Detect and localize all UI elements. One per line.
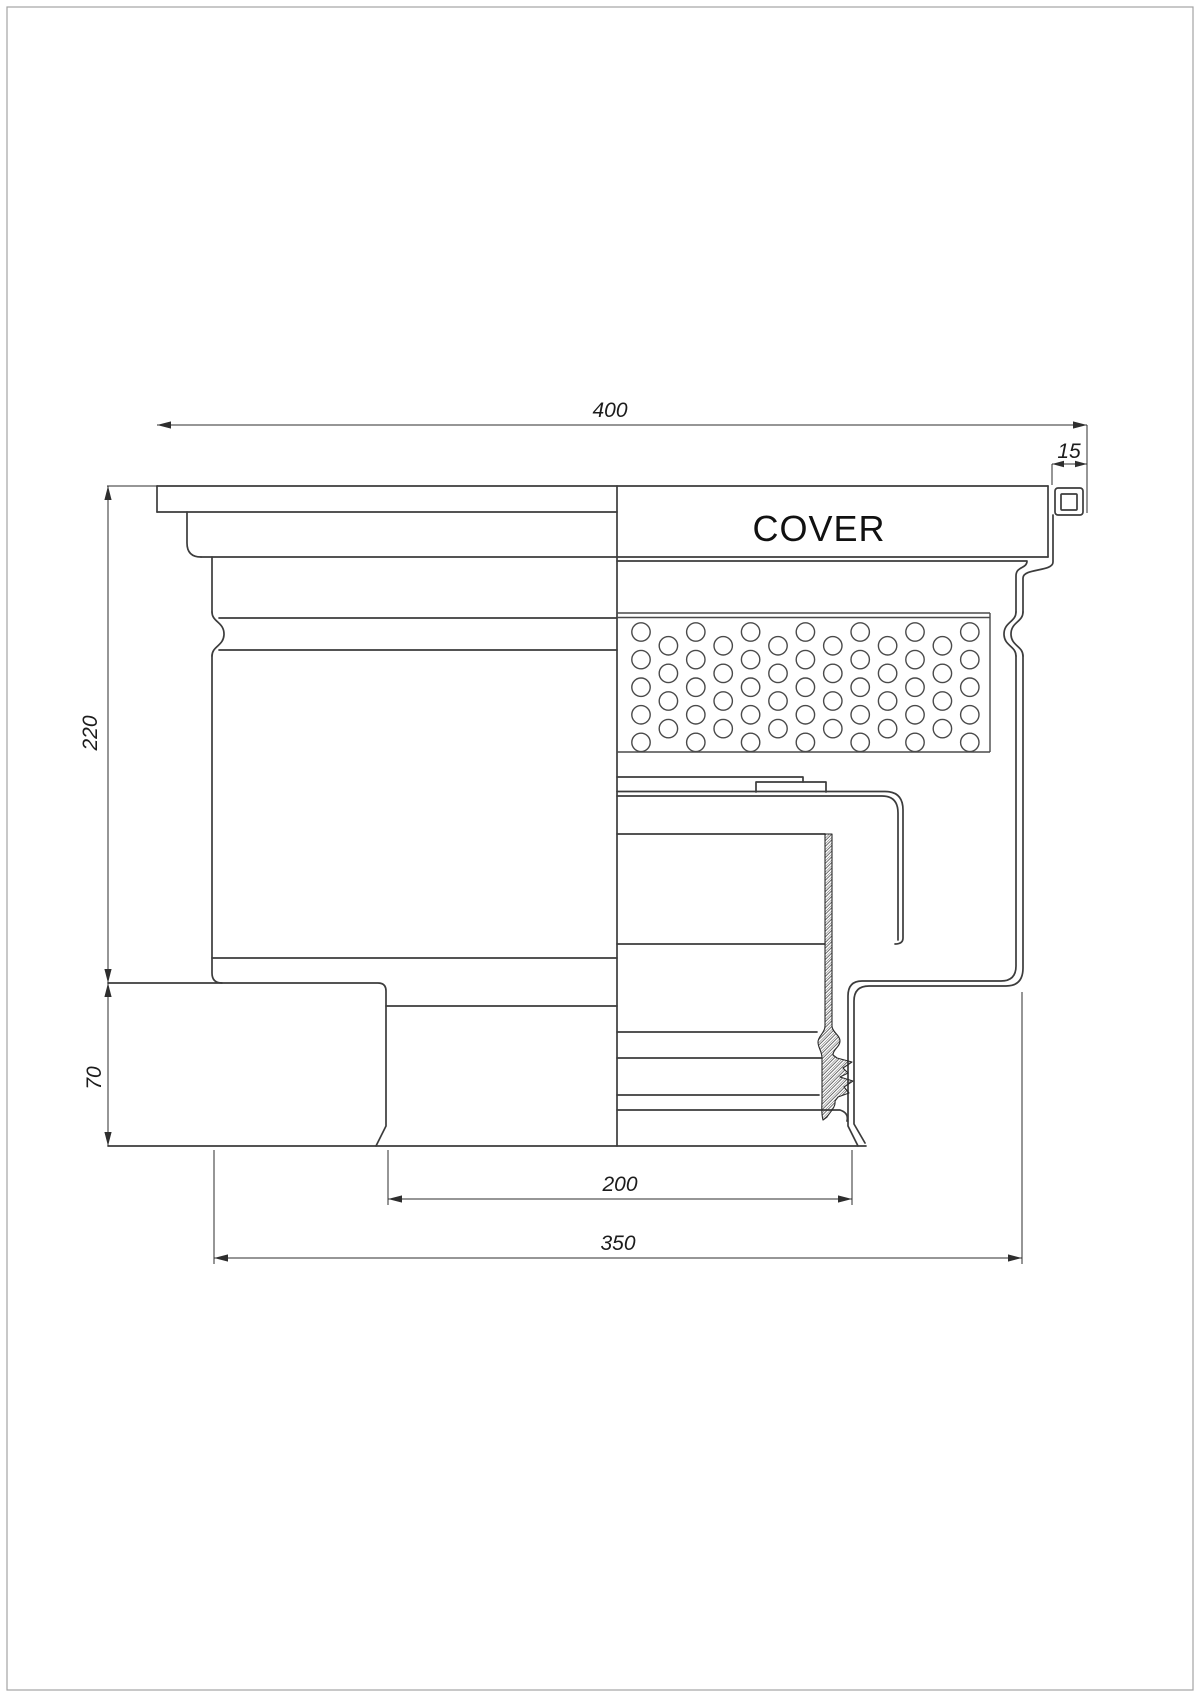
grate-hole xyxy=(851,650,869,668)
grate-hole xyxy=(961,650,979,668)
grate-hole xyxy=(632,733,650,751)
grate-hole xyxy=(687,623,705,641)
grate-hole xyxy=(687,706,705,724)
grate-hole xyxy=(741,678,759,696)
grate-hole xyxy=(878,664,896,682)
dim-label-top-width: 400 xyxy=(592,399,627,422)
cover-plate-outline xyxy=(157,486,1048,557)
grate-hole xyxy=(714,664,732,682)
grate-hole xyxy=(769,637,787,655)
grate-hole xyxy=(851,678,869,696)
grate-hole xyxy=(933,719,951,737)
grate-hole xyxy=(851,623,869,641)
grate-hole xyxy=(796,706,814,724)
grate-hole xyxy=(906,733,924,751)
grate-hole xyxy=(796,650,814,668)
right-break-bead-inner xyxy=(1004,612,1016,656)
grate-hole xyxy=(687,650,705,668)
grate-hole xyxy=(769,719,787,737)
grate-hole xyxy=(933,692,951,710)
grate-hole xyxy=(824,692,842,710)
grate-hole xyxy=(961,733,979,751)
grate-hole xyxy=(714,692,732,710)
grate-hole xyxy=(851,706,869,724)
grate-hole xyxy=(632,678,650,696)
grate-hole xyxy=(659,692,677,710)
grate-hole xyxy=(824,719,842,737)
grate-hole xyxy=(851,733,869,751)
dim-label-clamp-width: 15 xyxy=(1057,440,1081,463)
grate-hole xyxy=(632,650,650,668)
drawing-page: 400 15 220 70 200 350 COVER xyxy=(0,0,1200,1697)
grate-hole xyxy=(769,664,787,682)
grate-hole xyxy=(741,623,759,641)
grate-hole xyxy=(659,719,677,737)
frame-profile xyxy=(617,515,1053,1146)
dimension-arrows xyxy=(104,421,1087,1261)
dim-label-lower-height: 70 xyxy=(83,1066,106,1090)
inner-bucket xyxy=(617,777,903,944)
grate-hole xyxy=(906,623,924,641)
grate-hole xyxy=(933,637,951,655)
grate-hole xyxy=(824,637,842,655)
dim-label-upper-height: 220 xyxy=(79,715,102,751)
grate-hole xyxy=(769,692,787,710)
grate-hole xyxy=(741,733,759,751)
grate-hole xyxy=(659,637,677,655)
grate-hole xyxy=(906,678,924,696)
grate-hole xyxy=(741,706,759,724)
grate-hole xyxy=(878,637,896,655)
grate-hole xyxy=(796,733,814,751)
grate-hole xyxy=(878,719,896,737)
grate-hole xyxy=(687,678,705,696)
grate-hole xyxy=(961,678,979,696)
grate-hole xyxy=(714,719,732,737)
dim-label-base-width: 350 xyxy=(600,1232,635,1255)
grate-hole xyxy=(906,650,924,668)
perforated-grate xyxy=(617,613,990,752)
grate-hole xyxy=(659,664,677,682)
technical-drawing: 400 15 220 70 200 350 COVER xyxy=(0,0,1200,1697)
grate-hole xyxy=(632,706,650,724)
dim-label-outlet-width: 200 xyxy=(601,1173,637,1196)
grate-hole xyxy=(714,637,732,655)
sheet-border xyxy=(7,7,1193,1690)
grate-hole xyxy=(796,678,814,696)
grate-hole xyxy=(906,706,924,724)
cover-part-label: COVER xyxy=(752,508,885,549)
bucket-handle-tab xyxy=(756,782,826,792)
grate-hole xyxy=(878,692,896,710)
grate-holes xyxy=(632,623,979,752)
grate-hole xyxy=(961,706,979,724)
edge-clamp-section xyxy=(1055,488,1083,515)
grate-hole xyxy=(933,664,951,682)
funnel-seams xyxy=(617,1032,847,1121)
grate-hole xyxy=(741,650,759,668)
grate-hole xyxy=(796,623,814,641)
dimension-lines xyxy=(107,425,1087,1264)
grate-hole xyxy=(632,623,650,641)
grate-hole xyxy=(824,664,842,682)
grate-hole xyxy=(961,623,979,641)
grate-hole xyxy=(687,733,705,751)
